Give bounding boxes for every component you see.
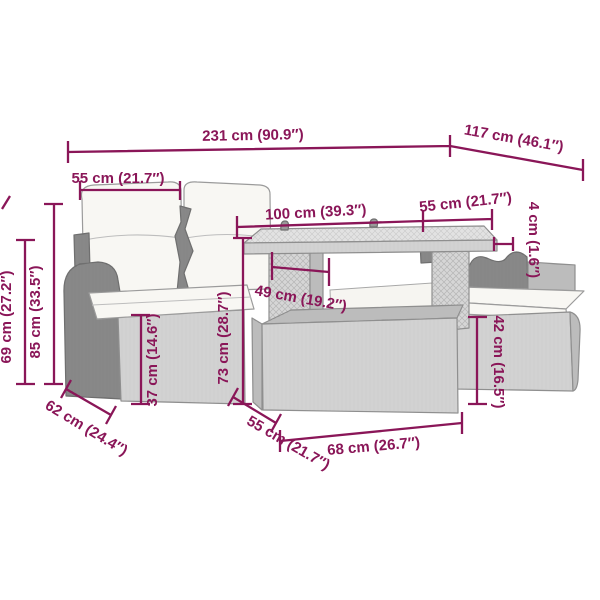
- left-sofa: [64, 182, 271, 404]
- dimension-label: 69 cm (27.2″): [0, 270, 15, 363]
- footstool-left-side: [252, 318, 262, 410]
- dim-stool-top-width: 55 cm (21.7″): [418, 189, 512, 230]
- dimension-label: 100 cm (39.3″): [265, 201, 367, 223]
- dimension-label: 68 cm (26.7″): [327, 434, 421, 459]
- dimension-line: [44, 204, 63, 384]
- table-top-edge: [244, 240, 497, 254]
- edge-tick: [2, 196, 10, 209]
- dimension-label: 55 cm (21.7″): [244, 412, 333, 473]
- dimension-label: 231 cm (90.9″): [202, 126, 304, 145]
- dimension-label: 55 cm (21.7″): [71, 170, 164, 187]
- dimension-label: 73 cm (28.7″): [215, 291, 232, 384]
- dimension-label: 4 cm (1.6″): [525, 202, 542, 278]
- footstool-front: [262, 318, 458, 413]
- product-dimension-image: 231 cm (90.9″) 117 cm (46.1″) 55 cm (21.…: [0, 0, 600, 600]
- center-footstool: [252, 305, 463, 413]
- dimension-label: 62 cm (24.4″): [42, 397, 131, 460]
- dim-total-depth: 117 cm (46.1″): [450, 121, 583, 181]
- dimension-line: [450, 146, 583, 181]
- wave-armrest: [469, 252, 528, 291]
- dimension-label: 37 cm (14.6″): [144, 313, 161, 406]
- table-top: [244, 219, 497, 254]
- dim-backrest-height: 85 cm (33.5″): [27, 204, 63, 384]
- dim-total-width: 231 cm (90.9″): [68, 126, 450, 163]
- dimension-label: 55 cm (21.7″): [418, 189, 512, 216]
- furniture-dimension-diagram: 231 cm (90.9″) 117 cm (46.1″) 55 cm (21.…: [0, 0, 600, 600]
- dimension-label: 42 cm (16.5″): [490, 315, 507, 408]
- armrest: [64, 262, 122, 399]
- dimension-label: 85 cm (33.5″): [27, 265, 44, 358]
